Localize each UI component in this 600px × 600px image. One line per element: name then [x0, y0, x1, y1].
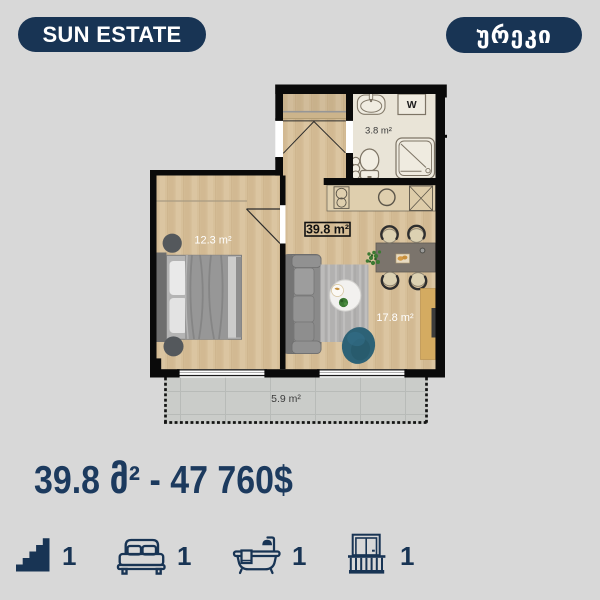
svg-text:17.8 m²: 17.8 m² — [376, 312, 414, 324]
svg-text:12.3 m²: 12.3 m² — [194, 235, 232, 247]
svg-text:5.9 m²: 5.9 m² — [271, 393, 301, 405]
svg-text:39.8 m²: 39.8 m² — [306, 222, 349, 236]
svg-text:W: W — [407, 99, 417, 111]
svg-text:3.8 m²: 3.8 m² — [365, 126, 392, 137]
